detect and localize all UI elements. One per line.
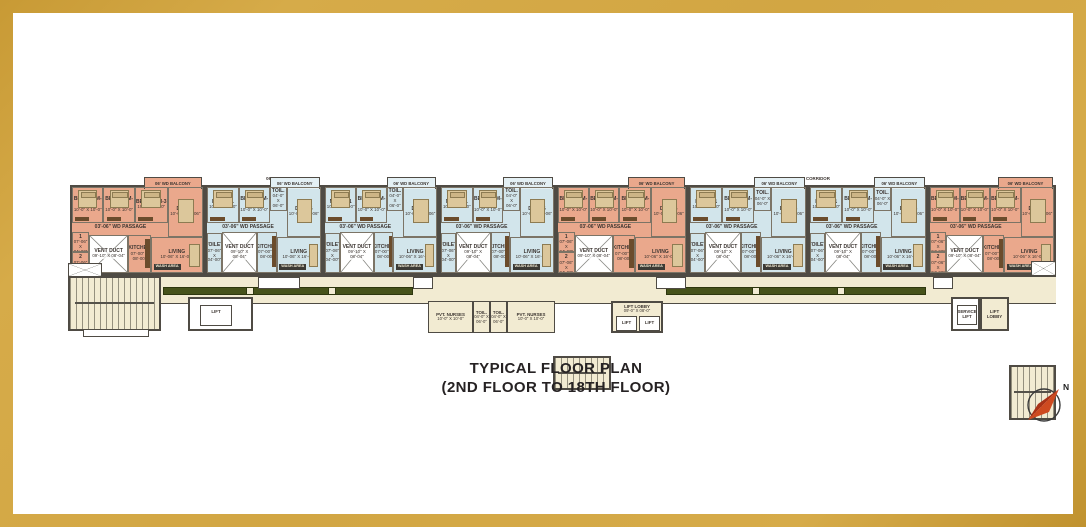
room-toilet2: TOILET 207'-06" X 04'-00" (558, 252, 575, 273)
room-dim: 09'-10" X 08'-04" (827, 250, 859, 260)
room-toilet1: TOILET 107'-06" X 04'-00" (930, 232, 946, 253)
kitchen-platform-icon (629, 239, 633, 268)
sofa-icon (542, 244, 552, 267)
room-bedroom1: BEDROOM-110'-0" X 10'-0" (72, 187, 103, 223)
room-bedroom2: BEDROOM-210'-0" X 10'-0" (103, 187, 134, 223)
room-toil-small: TOIL.04'-0" X 06'-0" (754, 187, 771, 211)
room-label: TOIL.04'-0" X 06'-0" (474, 310, 489, 325)
room-label: 03'-06" WD PASSAGE (340, 225, 392, 231)
bed-icon (696, 190, 716, 208)
room-toilet1: TOILET 107'-06" X 04'-00" (558, 232, 575, 253)
room-passage: 03'-06" WD PASSAGE (209, 223, 287, 232)
lift-room-left: LIFT (188, 297, 253, 331)
lift-label: LIFT (639, 320, 660, 325)
north-compass: N (1018, 377, 1076, 429)
room-bedroom2: BEDROOM-210'-0" X 10'-0" (960, 187, 990, 223)
sofa-icon (913, 244, 923, 267)
wash-area-tag: WASH AREA (513, 264, 540, 270)
unit-5-salmon: 06' WD BALCONY BEDROOM-110'-0" X 10'-0" … (556, 185, 688, 275)
wardrobe-icon (210, 217, 224, 221)
bed-icon (213, 190, 232, 208)
room-dim: 10'-0" X 10'-0" (240, 208, 269, 213)
shaft-right (1031, 261, 1056, 276)
room-bedroom1: BEDROOM-110'-0" X 10'-0" (558, 187, 589, 223)
wardrobe-icon (444, 217, 458, 221)
room-dim: 09'-10" X 08'-04" (458, 250, 489, 260)
room-vent-duct: VENT DUCT09'-10" X 08'-04" (825, 232, 861, 273)
bed-icon (626, 190, 645, 208)
room-label: 03'-06" WD PASSAGE (456, 225, 508, 231)
room-kitchen: KITCHEN07'-00" X 08'-00" (374, 232, 393, 273)
dining-table-icon (781, 199, 797, 222)
room-toil-small: TOIL.04'-0" X 06'-0" (874, 187, 891, 211)
wardrobe-icon (693, 217, 708, 221)
room-dim: 07'-06" X 04'-00" (558, 240, 575, 252)
room-toilet: TOILET07'-06" X 04'-00" (690, 233, 705, 273)
room-dim: 09'-10" X 08'-04" (342, 250, 373, 260)
lift-lobby-right: LIFT LOBBY (980, 297, 1009, 331)
compass-north-label: N (1063, 382, 1069, 392)
room-dim: 07'-06" X 04'-00" (441, 249, 456, 264)
plan-title: TYPICAL FLOOR PLAN (2ND FLOOR TO 18TH FL… (13, 360, 1086, 398)
lift-lobby-label: LIFT LOBBY09'-0" X 08'-0" (613, 304, 661, 314)
bed-icon (595, 190, 614, 208)
room-bedroom2: BEDROOM-210'-0" X 10'-0" (589, 187, 620, 223)
bed-icon (362, 190, 380, 208)
service-lift-right: SERVICE LIFT (951, 297, 980, 331)
room-label: PVT. NURSES10'-0" X 10'-0" (436, 312, 465, 322)
lift-label: LIFT (616, 320, 637, 325)
room-living: LIVING10'-06" X 16'-06"WASH AREA (761, 237, 806, 273)
kitchen-platform-icon (145, 239, 149, 268)
unit-7-blue: 06' WD BALCONY M. BED-110'-0" X 10'-0" B… (808, 185, 928, 275)
room-passage: 03'-06" WD PASSAGE (75, 223, 167, 232)
room-master-bed: M. BED-110'-0" X 10'-0" (207, 187, 239, 223)
room-dim: 09'-10" X 08'-04" (92, 254, 125, 259)
bed-icon (78, 190, 97, 208)
room-kitchen: KITCHEN07'-00" X 08'-00" (128, 235, 150, 273)
balcony-label: 06' WD BALCONY (639, 181, 675, 186)
shaft-left (68, 263, 102, 277)
lift-label: LIFT (200, 309, 232, 314)
room-passage: 03'-06" WD PASSAGE (692, 223, 771, 232)
room-vent-duct: VENT DUCT09'-10" X 08'-04" (946, 235, 983, 273)
room-toil-small: TOIL.04'-0" X 06'-0" (387, 187, 404, 211)
plan-title-line1: TYPICAL FLOOR PLAN (13, 360, 1086, 379)
wardrobe-icon (107, 217, 121, 221)
room-dim: 10'-0" X 10'-0" (931, 208, 959, 213)
room-toilet: TOILET07'-06" X 04'-00" (325, 233, 340, 273)
kitchen-platform-icon (389, 236, 393, 267)
corridor-label: 06' WIDE CORRIDOR (728, 176, 888, 181)
wash-area-tag: WASH AREA (396, 264, 423, 270)
balcony-label: 06' WD BALCONY (881, 181, 917, 186)
room-vent-duct: VENT DUCT09'-10" X 08'-04" (705, 232, 741, 273)
room-passage: 03'-06" WD PASSAGE (443, 223, 520, 232)
room-toilet: TOILET07'-06" X 04'-00" (207, 233, 222, 273)
room-label: 03'-06" WD PASSAGE (950, 225, 1002, 231)
bed-icon (245, 190, 264, 208)
room-master-bed: M. BED-110'-0" X 10'-0" (690, 187, 722, 223)
room-dim: 07'-06" X 04'-00" (930, 261, 946, 273)
room-vent-duct: VENT DUCT09'-10" X 08'-04" (222, 232, 257, 273)
room-dim: 09'-10" X 08'-04" (707, 250, 739, 260)
room-dim: 07'-06" X 04'-00" (558, 261, 575, 273)
wardrobe-icon (993, 217, 1007, 221)
room-dim: 10'-0" X 10'-0" (73, 208, 102, 213)
room-living: LIVING10'-06" X 16'-06"WASH AREA (510, 237, 554, 273)
room-kitchen: KITCHEN07'-00" X 08'-00" (491, 232, 510, 273)
stair-landing-left (83, 329, 149, 337)
bed-icon (564, 190, 583, 208)
room-toilet2: TOILET 207'-06" X 04'-00" (930, 252, 946, 273)
room-bedroom2: BEDROOM-210'-0" X 10'-0" (473, 187, 504, 223)
unit-3-blue: 06' WD BALCONY M. BED-110'-0" X 10'-0" B… (323, 185, 439, 275)
bed-icon (331, 190, 350, 208)
room-label: PVT. NURSES10'-0" X 10'-0" (517, 312, 546, 322)
room-dim: 10'-0" X 10'-0" (357, 208, 385, 213)
room-living: LIVING10'-06" X 16'-06"WASH AREA (151, 237, 203, 273)
kitchen-platform-icon (999, 239, 1003, 268)
room-master-bed: M. BED-110'-0" X 10'-0" (810, 187, 842, 223)
room-dim: 07'-06" X 04'-00" (207, 249, 222, 264)
bed-icon (996, 190, 1015, 208)
wardrobe-icon (476, 217, 490, 221)
room-bedroom2: BEDROOM-210'-0" X 10'-0" (722, 187, 753, 223)
wardrobe-icon (75, 217, 89, 221)
room-dim: 04'-0" X 06'-0" (388, 194, 403, 209)
staircase-left (68, 276, 161, 331)
room-dim: 10'-0" X 10'-0" (104, 208, 133, 213)
room-toilet: TOILET07'-06" X 04'-00" (810, 233, 825, 273)
dining-table-icon (413, 199, 428, 222)
room-dim: 07'-06" X 04'-00" (930, 240, 946, 252)
room-label: 03'-06" WD PASSAGE (222, 225, 274, 231)
bed-icon (936, 190, 954, 208)
room-dim: 10'-0" X 10'-0" (559, 208, 588, 213)
bed-icon (966, 190, 984, 208)
wardrobe-icon (623, 217, 637, 221)
room-dining: DINING10'-0" X 09'-06" (651, 187, 686, 237)
room-label: TOIL.04'-0" X 06'-0" (491, 310, 506, 325)
bed-icon (110, 190, 129, 208)
room-dim: 04'-0" X 06'-0" (875, 197, 890, 207)
wardrobe-icon (592, 217, 606, 221)
wash-area-tag: WASH AREA (883, 264, 910, 270)
wash-area-tag: WASH AREA (154, 264, 181, 270)
corridor-band (666, 287, 926, 295)
bed-icon (447, 190, 466, 208)
dining-table-icon (662, 199, 678, 222)
sofa-icon (425, 244, 435, 267)
room-dim: 04'-0" X 06'-0" (271, 194, 286, 209)
bed-icon (816, 190, 836, 208)
bed-icon (141, 190, 161, 208)
room-dim: 09'-10" X 08'-04" (948, 254, 981, 259)
bed-icon (849, 190, 868, 208)
room-dining: DINING10'-0" X 09'-06" (771, 187, 806, 237)
balcony-label: 06' WD BALCONY (155, 181, 191, 186)
room-passage: 03'-06" WD PASSAGE (561, 223, 651, 232)
room-dim: 07'-06" X 04'-00" (72, 240, 89, 252)
room-kitchen: KITCHEN07'-00" X 08'-00" (983, 235, 1004, 273)
wash-area-tag: WASH AREA (763, 264, 790, 270)
room-dim: 10'-0" X 10'-0" (723, 208, 752, 213)
corridor-opening (413, 277, 433, 289)
wardrobe-icon (360, 217, 374, 221)
drawing-canvas: 06' WIDE CORRIDOR 06' WIDE CORRIDOR 06' … (13, 13, 1073, 514)
room-toilet1: TOILET 107'-06" X 04'-00" (72, 232, 89, 253)
room-toil-small: TOIL.04'-0" X 06'-0" (270, 187, 287, 211)
room-dim: 10'-0" X 10'-0" (991, 208, 1020, 213)
room-toil-small: TOIL.04'-0" X 06'-0" (503, 187, 520, 211)
wardrobe-icon (561, 217, 575, 221)
room-passage: 03'-06" WD PASSAGE (932, 223, 1019, 232)
room-kitchen: KITCHEN07'-00" X 08'-00" (861, 232, 881, 273)
dining-table-icon (530, 199, 545, 222)
room-vent-duct: VENT DUCT09'-10" X 08'-04" (456, 232, 491, 273)
sofa-icon (309, 244, 319, 267)
dining-table-icon (1030, 199, 1045, 222)
room-passage: 03'-06" WD PASSAGE (812, 223, 891, 232)
room-dim: 04'-0" X 06'-0" (755, 197, 770, 207)
room-pvt-nurses: PVT. NURSES10'-0" X 10'-0" (507, 301, 555, 333)
room-dim: 10'-0" X 10'-0" (590, 208, 619, 213)
room-dining: DINING10'-0" X 09'-06" (168, 187, 203, 237)
balcony-label: 06' WD BALCONY (1008, 181, 1044, 186)
balcony-label: 06' WD BALCONY (510, 181, 546, 186)
corridor-opening (258, 277, 300, 289)
corridor-opening (656, 277, 686, 289)
room-dim: 10'-0" X 10'-0" (474, 208, 503, 213)
room-living: LIVING10'-06" X 16'-06"WASH AREA (635, 237, 686, 273)
lift-lobby-center: LIFT LOBBY09'-0" X 08'-0" LIFT LIFT (611, 301, 663, 333)
wash-area-tag: WASH AREA (279, 264, 306, 270)
sofa-icon (189, 244, 200, 267)
room-dim: 07'-06" X 04'-00" (325, 249, 340, 264)
room-toil: TOIL.04'-0" X 06'-0" (490, 301, 507, 333)
room-toil: TOIL.04'-0" X 06'-0" (473, 301, 490, 333)
wash-area-tag: WASH AREA (638, 264, 665, 270)
room-dim: 10'-0" X 10'-0" (843, 208, 872, 213)
room-living: LIVING10'-06" X 16'-06"WASH AREA (881, 237, 926, 273)
wardrobe-icon (138, 217, 153, 221)
wardrobe-icon (846, 217, 860, 221)
wardrobe-icon (963, 217, 976, 221)
service-lift-label: SERVICE LIFT (954, 309, 980, 319)
room-dim: 04'-0" X 06'-0" (504, 194, 519, 209)
room-kitchen: KITCHEN07'-00" X 08'-00" (741, 232, 761, 273)
room-dim: 07'-06" X 04'-00" (690, 249, 705, 264)
unit-6-blue: 06' WD BALCONY M. BED-110'-0" X 10'-0" B… (688, 185, 808, 275)
wardrobe-icon (933, 217, 946, 221)
balcony-label: 06' WD BALCONY (761, 181, 797, 186)
room-master-bed: M. BED-110'-0" X 10'-0" (325, 187, 356, 223)
room-dim: 09'-10" X 08'-04" (578, 254, 611, 259)
wardrobe-icon (328, 217, 342, 221)
room-vent-duct: VENT DUCT09'-10" X 08'-04" (575, 235, 613, 273)
room-master-bed: M. BED-110'-0" X 10'-0" (441, 187, 473, 223)
room-bedroom3: BEDROOM-310'-0" X 10'-0" (990, 187, 1021, 223)
dining-table-icon (297, 199, 313, 222)
room-bedroom1: BEDROOM-110'-0" X 10'-0" (930, 187, 960, 223)
gold-frame: 06' WIDE CORRIDOR 06' WIDE CORRIDOR 06' … (0, 0, 1086, 527)
room-dining: DINING10'-0" X 09'-06" (1021, 187, 1054, 237)
room-toilet: TOILET07'-06" X 04'-00" (441, 233, 456, 273)
corridor-opening (933, 277, 953, 289)
room-dining: DINING10'-0" X 09'-06" (403, 187, 437, 237)
sofa-icon (672, 244, 683, 267)
room-pvt-nurses: PVT. NURSES10'-0" X 10'-0" (428, 301, 473, 333)
room-dim: 10'-0" X 10'-0" (961, 208, 989, 213)
room-label: 03'-06" WD PASSAGE (580, 225, 632, 231)
room-living: LIVING10'-06" X 16'-06"WASH AREA (277, 237, 321, 273)
room-vent-duct: VENT DUCT09'-10" X 08'-04" (340, 232, 375, 273)
room-dining: DINING10'-0" X 09'-06" (891, 187, 926, 237)
kitchen-platform-icon (272, 236, 276, 267)
unit-2-blue: 06' WD BALCONY M. BED-110'-0" X 10'-0" B… (205, 185, 323, 275)
unit-4-blue: 06' WD BALCONY M. BED-110'-0" X 10'-0" B… (439, 185, 556, 275)
room-bedroom3: BEDROOM-310'-0" X 10'-0" (135, 187, 168, 223)
room-dining: DINING10'-0" X 09'-06" (287, 187, 321, 237)
wardrobe-icon (813, 217, 828, 221)
kitchen-platform-icon (505, 236, 509, 267)
room-dim: 10'-0" X 10'-0" (620, 208, 650, 213)
room-kitchen: KITCHEN07'-00" X 08'-00" (257, 232, 276, 273)
room-kitchen: KITCHEN07'-00" X 08'-00" (613, 235, 635, 273)
wardrobe-icon (726, 217, 740, 221)
floor-plan: 06' WIDE CORRIDOR 06' WIDE CORRIDOR 06' … (68, 173, 1060, 341)
wardrobe-icon (242, 217, 256, 221)
room-dining: DINING10'-0" X 09'-06" (520, 187, 554, 237)
room-dim: 07'-06" X 04'-00" (810, 249, 825, 264)
sofa-icon (793, 244, 803, 267)
room-bedroom2: BEDROOM-210'-0" X 10'-0" (842, 187, 873, 223)
unit-1-salmon: 06' WD BALCONY BEDROOM-110'-0" X 10'-0" … (70, 185, 205, 275)
kitchen-platform-icon (876, 236, 880, 267)
dining-table-icon (901, 199, 917, 222)
room-bedroom2: BEDROOM-210'-0" X 10'-0" (356, 187, 386, 223)
bed-icon (729, 190, 748, 208)
room-label: 03'-06" WD PASSAGE (95, 225, 147, 231)
room-dim: 09'-10" X 08'-04" (224, 250, 255, 260)
room-label: 03'-06" WD PASSAGE (706, 225, 758, 231)
room-living: LIVING10'-06" X 16'-06"WASH AREA (393, 237, 437, 273)
balcony-label: 06' WD BALCONY (277, 181, 313, 186)
room-label: 03'-06" WD PASSAGE (826, 225, 878, 231)
bed-icon (479, 190, 498, 208)
dining-table-icon (178, 199, 194, 222)
balcony-label: 06' WD BALCONY (393, 181, 429, 186)
plan-title-line2: (2ND FLOOR TO 18TH FLOOR) (13, 379, 1086, 398)
kitchen-platform-icon (756, 236, 760, 267)
room-passage: 03'-06" WD PASSAGE (327, 223, 403, 232)
room-bedroom3: BEDROOM-310'-0" X 10'-0" (619, 187, 651, 223)
lift-lobby-label: LIFT LOBBY (982, 309, 1007, 319)
room-bedroom2: BEDROOM-210'-0" X 10'-0" (239, 187, 270, 223)
